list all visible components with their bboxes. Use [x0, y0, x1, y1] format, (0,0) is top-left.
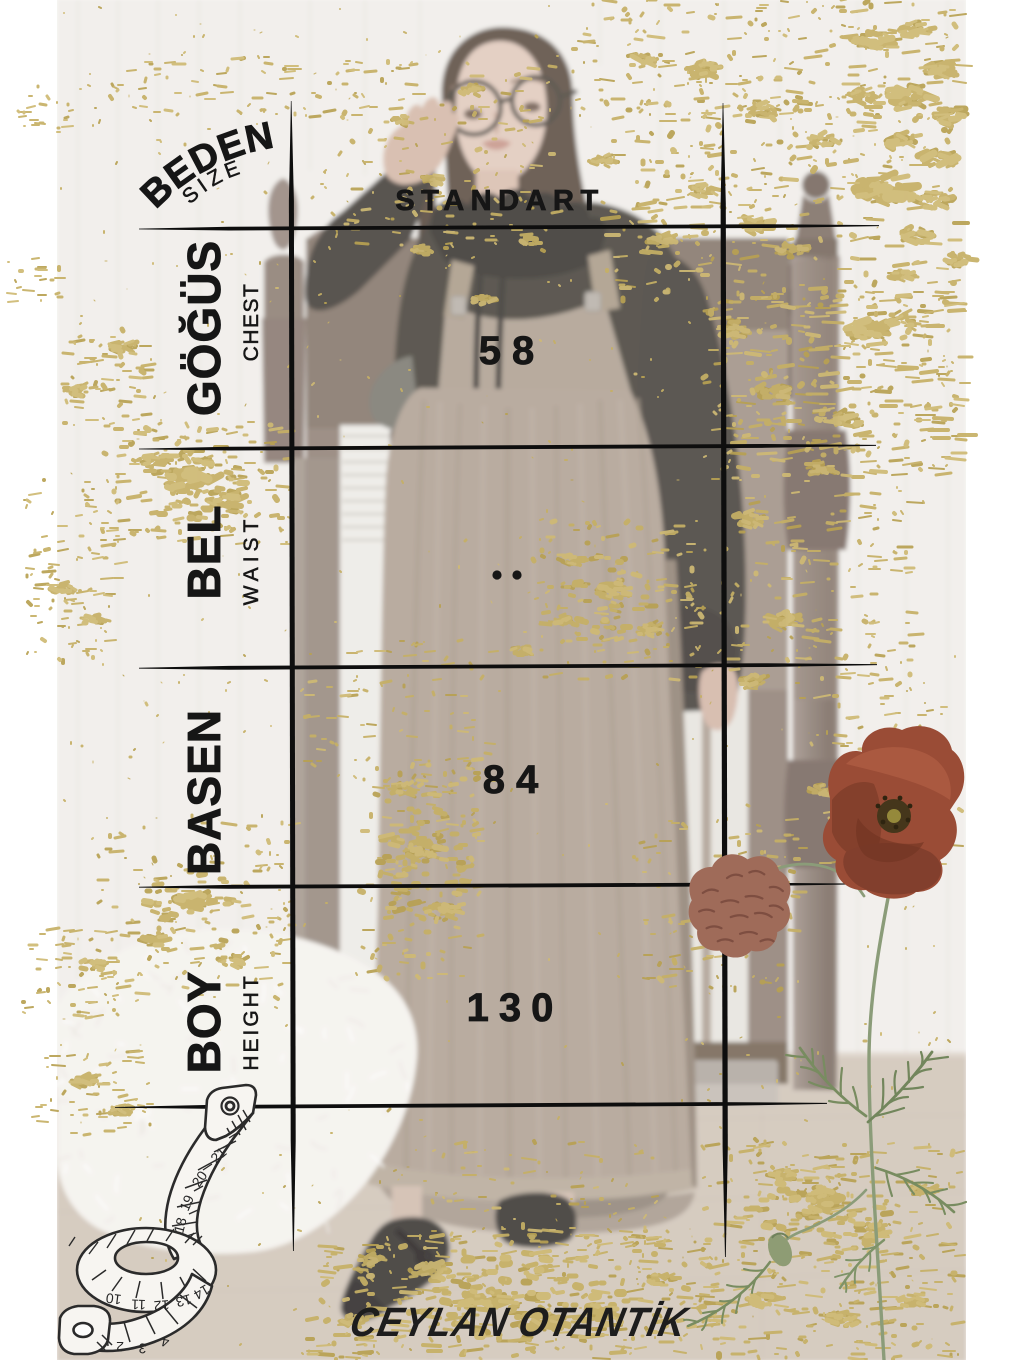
svg-text:STANDART: STANDART	[395, 185, 604, 217]
svg-text:12: 12	[153, 1297, 170, 1314]
svg-text:HEIGHT: HEIGHT	[240, 973, 263, 1070]
svg-text:BEL: BEL	[178, 505, 230, 600]
svg-text:GÖĞÜS: GÖĞÜS	[178, 240, 230, 416]
svg-text:130: 130	[467, 986, 564, 1030]
svg-text:84: 84	[483, 758, 550, 802]
svg-text:CHEST: CHEST	[240, 283, 263, 362]
svg-text:58: 58	[479, 329, 546, 373]
svg-text:CEYLAN OTANTİK: CEYLAN OTANTİK	[346, 1298, 694, 1344]
svg-text:2: 2	[116, 1339, 124, 1355]
svg-text:11: 11	[131, 1296, 146, 1313]
svg-text:BASEN: BASEN	[178, 709, 230, 875]
svg-text:10: 10	[105, 1290, 123, 1308]
svg-text:WAIST: WAIST	[240, 515, 263, 606]
svg-text:BOY: BOY	[178, 971, 230, 1074]
